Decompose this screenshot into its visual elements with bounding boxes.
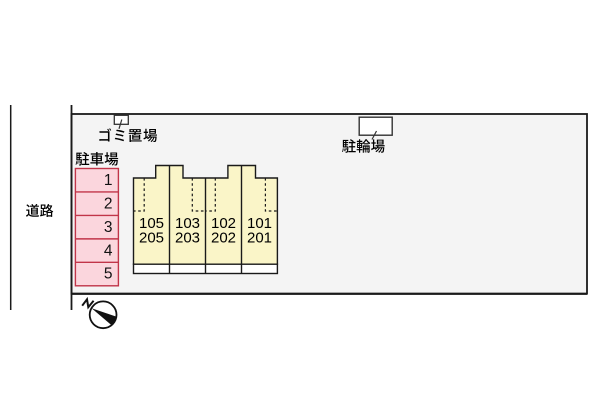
svg-text:4: 4 <box>104 242 113 259</box>
svg-text:202: 202 <box>211 229 236 246</box>
svg-text:201: 201 <box>247 229 272 246</box>
svg-text:3: 3 <box>104 219 113 236</box>
svg-text:5: 5 <box>104 266 113 283</box>
svg-text:2: 2 <box>104 195 113 212</box>
svg-text:205: 205 <box>139 229 164 246</box>
svg-text:203: 203 <box>175 229 200 246</box>
svg-text:1: 1 <box>104 172 113 189</box>
